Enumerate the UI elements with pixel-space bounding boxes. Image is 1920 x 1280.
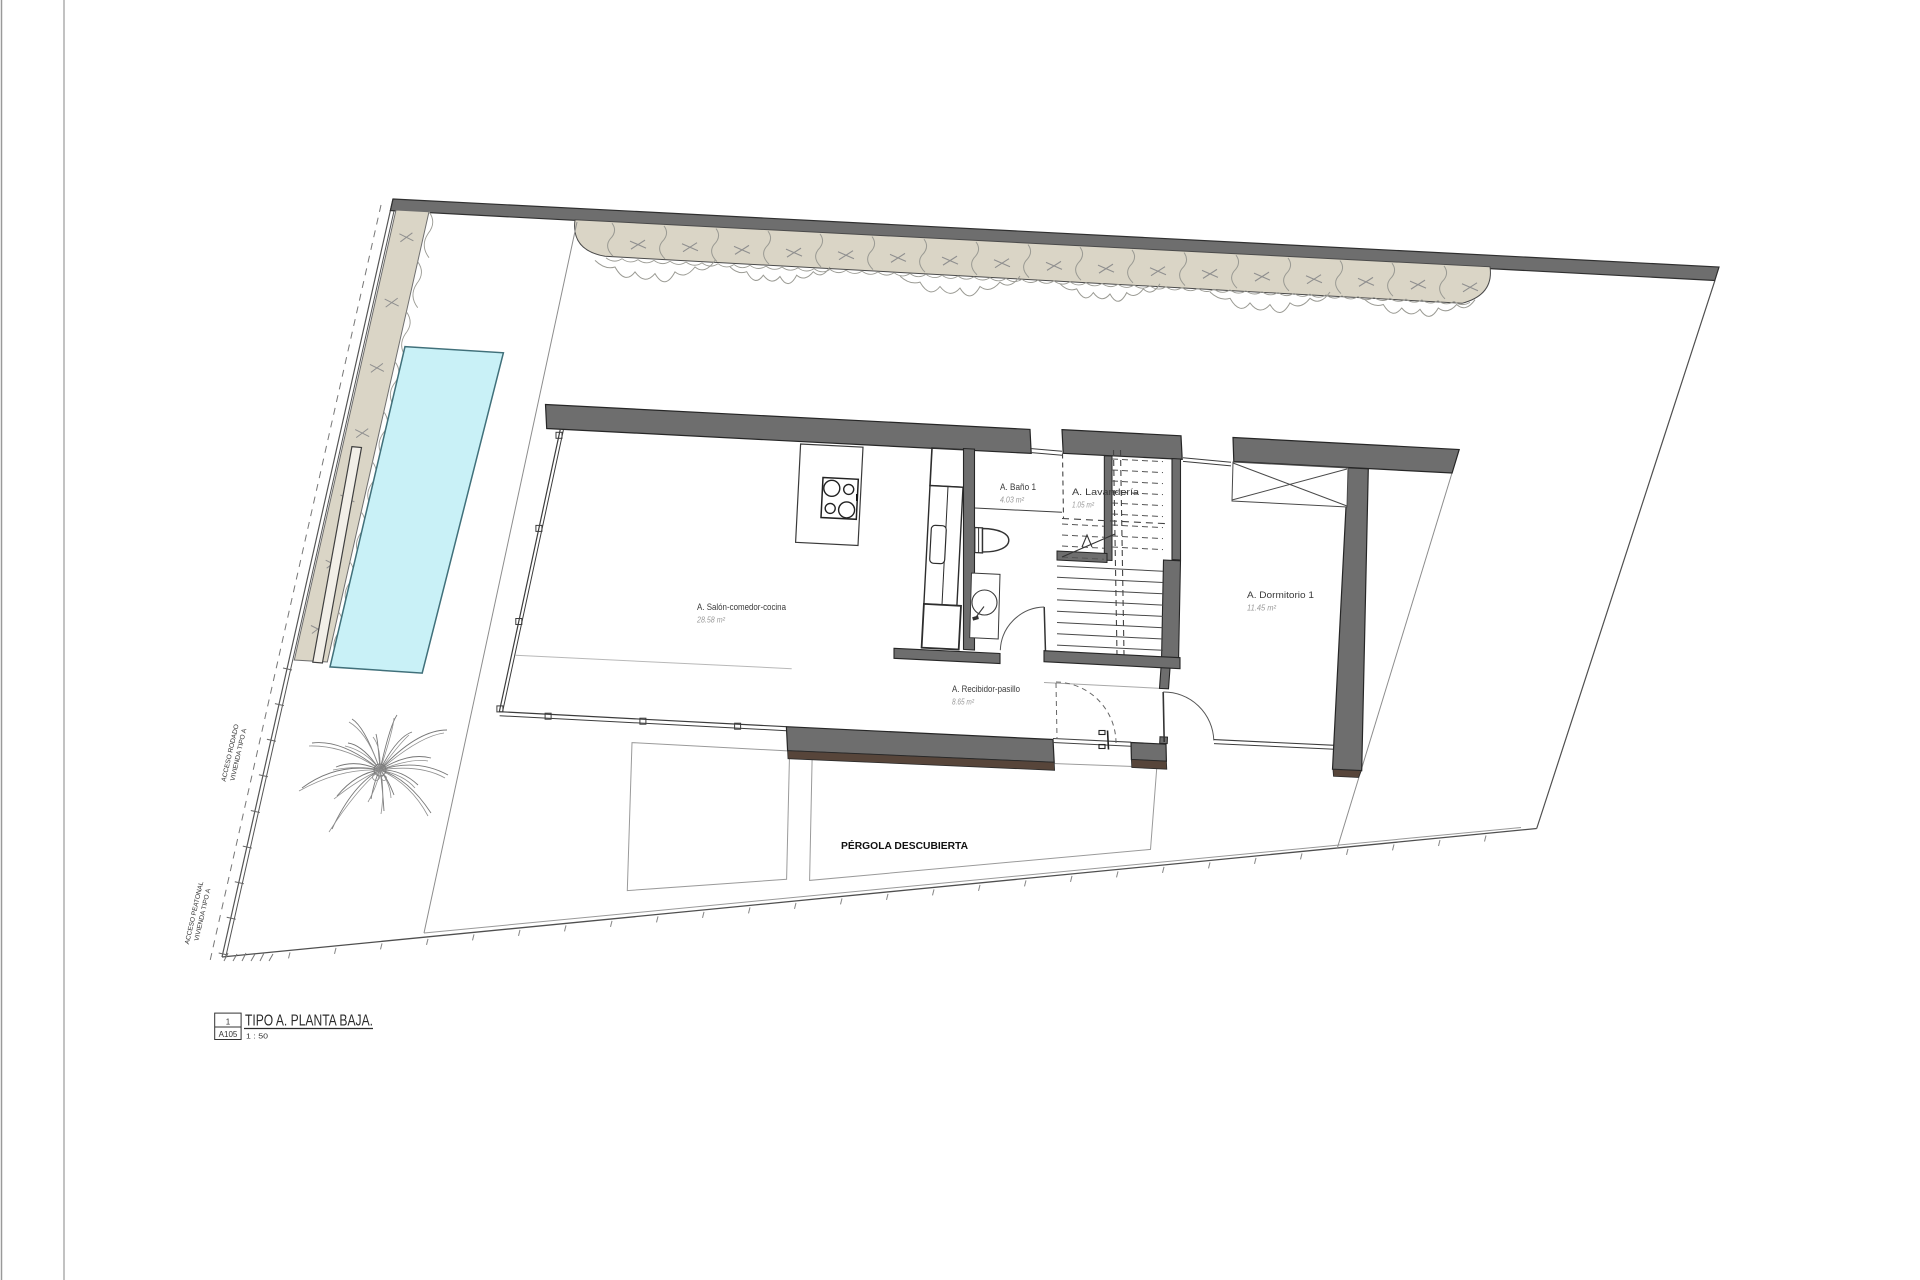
svg-text:A. Dormitorio 1: A. Dormitorio 1 — [1247, 590, 1314, 600]
svg-text:A. Salón-comedor-cocina: A. Salón-comedor-cocina — [697, 602, 786, 612]
svg-text:28.58 m²: 28.58 m² — [696, 615, 725, 625]
svg-text:4.03 m²: 4.03 m² — [1000, 495, 1024, 505]
svg-text:A. Lavandería: A. Lavandería — [1072, 487, 1139, 497]
svg-text:A105: A105 — [219, 1030, 238, 1039]
svg-text:1: 1 — [226, 1018, 231, 1027]
svg-text:TIPO A. PLANTA BAJA.: TIPO A. PLANTA BAJA. — [245, 1013, 373, 1030]
svg-text:8.65 m²: 8.65 m² — [952, 697, 974, 707]
svg-text:11.45 m²: 11.45 m² — [1247, 603, 1276, 613]
svg-text:1.05 m²: 1.05 m² — [1072, 500, 1094, 510]
svg-text:PÉRGOLA DESCUBIERTA: PÉRGOLA DESCUBIERTA — [841, 839, 969, 852]
svg-text:A. Baño 1: A. Baño 1 — [1000, 482, 1036, 492]
svg-text:1 : 50: 1 : 50 — [246, 1032, 268, 1041]
svg-text:A. Recibidor-pasillo: A. Recibidor-pasillo — [952, 684, 1020, 694]
